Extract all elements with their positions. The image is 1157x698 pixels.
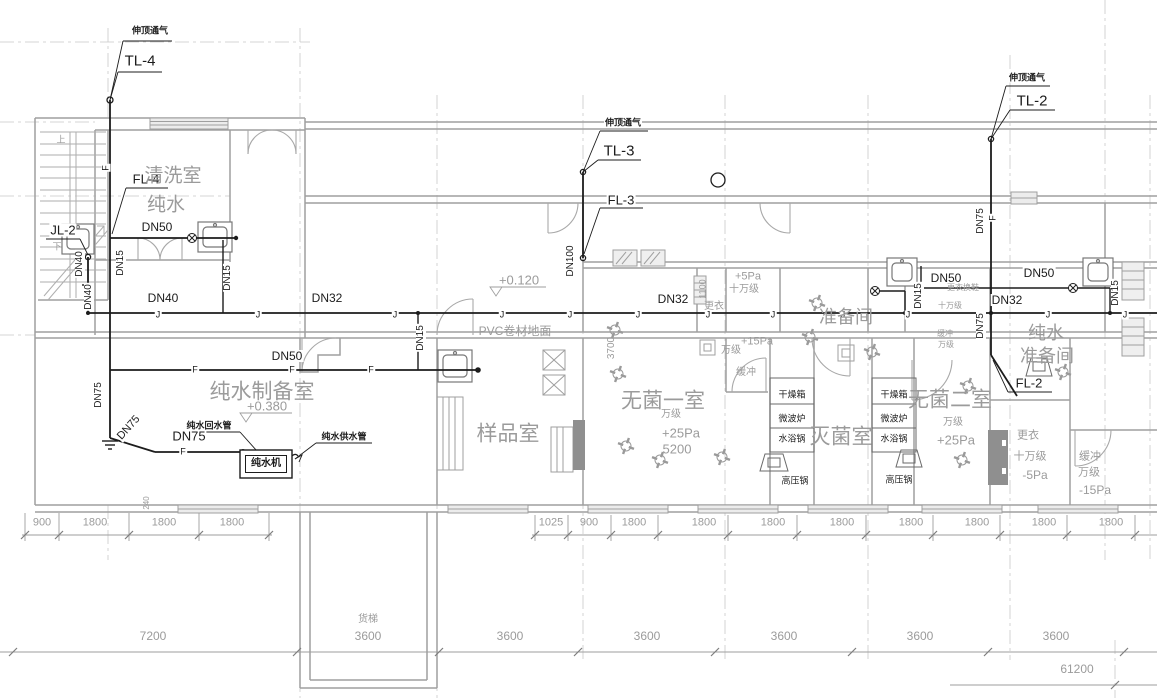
- pipe_size-label-5: DN40: [147, 292, 180, 304]
- dimension-label-11: 1800: [965, 518, 989, 529]
- pipe_size-label-11: DN75: [171, 430, 206, 443]
- dimension-label-3: 1800: [220, 518, 244, 529]
- dimension-label-12: 1800: [1032, 518, 1056, 529]
- pressure-label-0: +5Pa: [735, 272, 761, 283]
- room-sample: 样品室: [477, 424, 540, 445]
- pipe-label-15: F: [179, 448, 187, 457]
- dimension-label-18: 3600: [771, 630, 798, 642]
- dimension-label-23: 3700: [607, 337, 617, 359]
- pipe-label-5: J: [635, 311, 642, 320]
- pressure-label-2: 更衣: [704, 302, 724, 312]
- pipe_size-label-10: DN75: [115, 413, 143, 443]
- pipe-label-3: J: [499, 311, 506, 320]
- room-sterile-2: 无菌二室: [908, 390, 992, 411]
- pressure-label-13: 万级: [943, 418, 963, 428]
- dimension-label-8: 1800: [761, 518, 785, 529]
- dimension-label-4: 1025: [539, 518, 563, 529]
- pressure-label-12: 万级: [938, 341, 954, 349]
- pipe_size-label-0: DN50: [141, 221, 174, 233]
- equipment-label-5: 微波炉: [880, 415, 907, 424]
- note-pure-water-supply-pipe: 纯水供水管: [320, 433, 367, 442]
- dimension-label-7: 1800: [692, 518, 716, 529]
- pressure-label-10: 十万级: [938, 302, 962, 310]
- dimension-label-17: 3600: [634, 630, 661, 642]
- pressure-label-6: 万级: [661, 410, 681, 420]
- dimension-label-16: 3600: [497, 630, 524, 642]
- pipe_size-label-12: DN100: [566, 244, 576, 277]
- room-pure-water-prep2-line2: 准备间: [1020, 347, 1074, 365]
- freight-elevator: 货梯: [358, 615, 378, 625]
- dimension-label-24: 1100: [699, 279, 708, 298]
- pressure-label-17: -5Pa: [1022, 469, 1047, 481]
- pipe-label-13: F: [288, 366, 296, 375]
- dimension-label-15: 3600: [355, 630, 382, 642]
- pipe-label-16: F: [102, 164, 111, 172]
- dimension-label-2: 1800: [152, 518, 176, 529]
- floor-finish-pvc: PVC卷材地面: [479, 325, 552, 337]
- pipe-label-17: F: [989, 214, 998, 222]
- equipment-label-1: 微波炉: [778, 415, 805, 424]
- pipe_size-label-13: DN32: [657, 293, 690, 305]
- equipment-label-2: 水浴锅: [778, 435, 805, 444]
- vent-note-tl3: 伸顶通气: [604, 119, 642, 128]
- pipe_size-label-1: DN15: [116, 249, 126, 277]
- stair-down: 下: [52, 243, 61, 252]
- pipe_size-label-4: DN15: [223, 264, 233, 292]
- riser-tl4: TL-4: [124, 54, 157, 69]
- pressure-label-14: +25Pa: [937, 434, 975, 447]
- pressure-label-4: 万级: [721, 346, 741, 356]
- riser-jl2: JL-2: [49, 224, 76, 237]
- pipe-label-2: J: [392, 311, 399, 320]
- dimension-label-14: 7200: [140, 630, 167, 642]
- dimension-label-21: 61200: [1060, 663, 1093, 675]
- equipment-label-4: 干燥箱: [880, 391, 907, 400]
- pipe_size-label-20: DN15: [1111, 279, 1121, 307]
- pipe_size-label-3: DN40: [84, 283, 94, 311]
- pressure-label-3: +15Pa: [741, 337, 773, 348]
- elevation-0120: +0.120: [499, 274, 539, 287]
- pipe_size-label-14: DN75: [976, 207, 986, 235]
- riser-tl2: TL-2: [1016, 94, 1049, 109]
- pipe-label-11: J: [1122, 311, 1129, 320]
- stair-up: 上: [56, 136, 65, 145]
- pipe-label-12: F: [191, 366, 199, 375]
- pressure-label-8: 5200: [663, 443, 692, 456]
- vent-note-tl2: 伸顶通气: [1008, 74, 1046, 83]
- pressure-label-1: 十万级: [729, 285, 759, 295]
- pipe_size-label-7: DN50: [271, 350, 304, 362]
- pressure-label-19: 万级: [1078, 468, 1100, 479]
- pressure-label-16: 十万级: [1014, 452, 1047, 463]
- riser-fl3: FL-3: [607, 194, 636, 207]
- pipe-label-4: J: [567, 311, 574, 320]
- dimension-label-9: 1800: [830, 518, 854, 529]
- dimension-label-1: 1800: [83, 518, 107, 529]
- room-pure-water-prep2-line1: 纯水: [1028, 324, 1064, 342]
- pressure-label-11: 缓冲: [937, 330, 953, 338]
- equipment-label-6: 水浴锅: [880, 435, 907, 444]
- riser-tl3: TL-3: [603, 144, 636, 159]
- pipe_size-label-19: DN50: [1023, 267, 1056, 279]
- note-pure-water-return-pipe: 纯水回水管: [185, 422, 232, 431]
- room-washing: 清洗室: [144, 167, 201, 186]
- pipe_size-label-9: DN75: [94, 381, 104, 409]
- pipe-label-0: J: [155, 311, 162, 320]
- pressure-label-7: +25Pa: [662, 427, 700, 440]
- equipment-label-7: 高压锅: [885, 476, 912, 485]
- room-washing-2: 纯水: [147, 196, 185, 215]
- dimension-label-0: 900: [33, 518, 51, 529]
- dimension-label-22: 240: [143, 496, 151, 509]
- dimension-label-6: 1800: [622, 518, 646, 529]
- dimension-label-19: 3600: [907, 630, 934, 642]
- pure-water-machine: 纯水机: [245, 455, 287, 473]
- pipe_size-label-15: DN15: [914, 282, 924, 310]
- elevation-0380: +0.380: [247, 400, 287, 413]
- floor-plan: 伸顶通气TL-4FL-4JL-2伸顶通气TL-3FL-3伸顶通气TL-2FL-2…: [0, 0, 1157, 698]
- pressure-label-5: 缓冲: [736, 368, 756, 378]
- pipe_size-label-17: DN75: [976, 312, 986, 340]
- pressure-label-9: 更衣换鞋: [947, 284, 979, 292]
- dimension-label-13: 1800: [1099, 518, 1123, 529]
- pipe_size-label-8: DN15: [416, 324, 426, 352]
- pressure-label-20: -15Pa: [1079, 484, 1111, 496]
- dimension-label-10: 1800: [899, 518, 923, 529]
- pipe-label-1: J: [255, 311, 262, 320]
- pipe-label-10: J: [1045, 311, 1052, 320]
- equipment-label-3: 高压锅: [781, 477, 808, 486]
- pipe-label-14: F: [367, 366, 375, 375]
- pressure-label-18: 缓冲: [1079, 452, 1101, 463]
- pressure-label-15: 更衣: [1017, 431, 1039, 442]
- pipe-label-7: J: [770, 311, 777, 320]
- pipe_size-label-6: DN32: [311, 292, 344, 304]
- plan-labels: 伸顶通气TL-4FL-4JL-2伸顶通气TL-3FL-3伸顶通气TL-2FL-2…: [0, 0, 1157, 698]
- dimension-label-20: 3600: [1043, 630, 1070, 642]
- dimension-label-5: 900: [580, 518, 598, 529]
- equipment-label-0: 干燥箱: [778, 391, 805, 400]
- pipe_size-label-18: DN32: [991, 294, 1024, 306]
- vent-note-tl4: 伸顶通气: [131, 27, 169, 36]
- pipe-label-9: J: [905, 311, 912, 320]
- pipe_size-label-2: DN40: [75, 250, 85, 278]
- room-prep: 准备间: [819, 308, 873, 326]
- room-sterilization: 灭菌室: [810, 427, 873, 448]
- riser-fl2: FL-2: [1015, 377, 1044, 390]
